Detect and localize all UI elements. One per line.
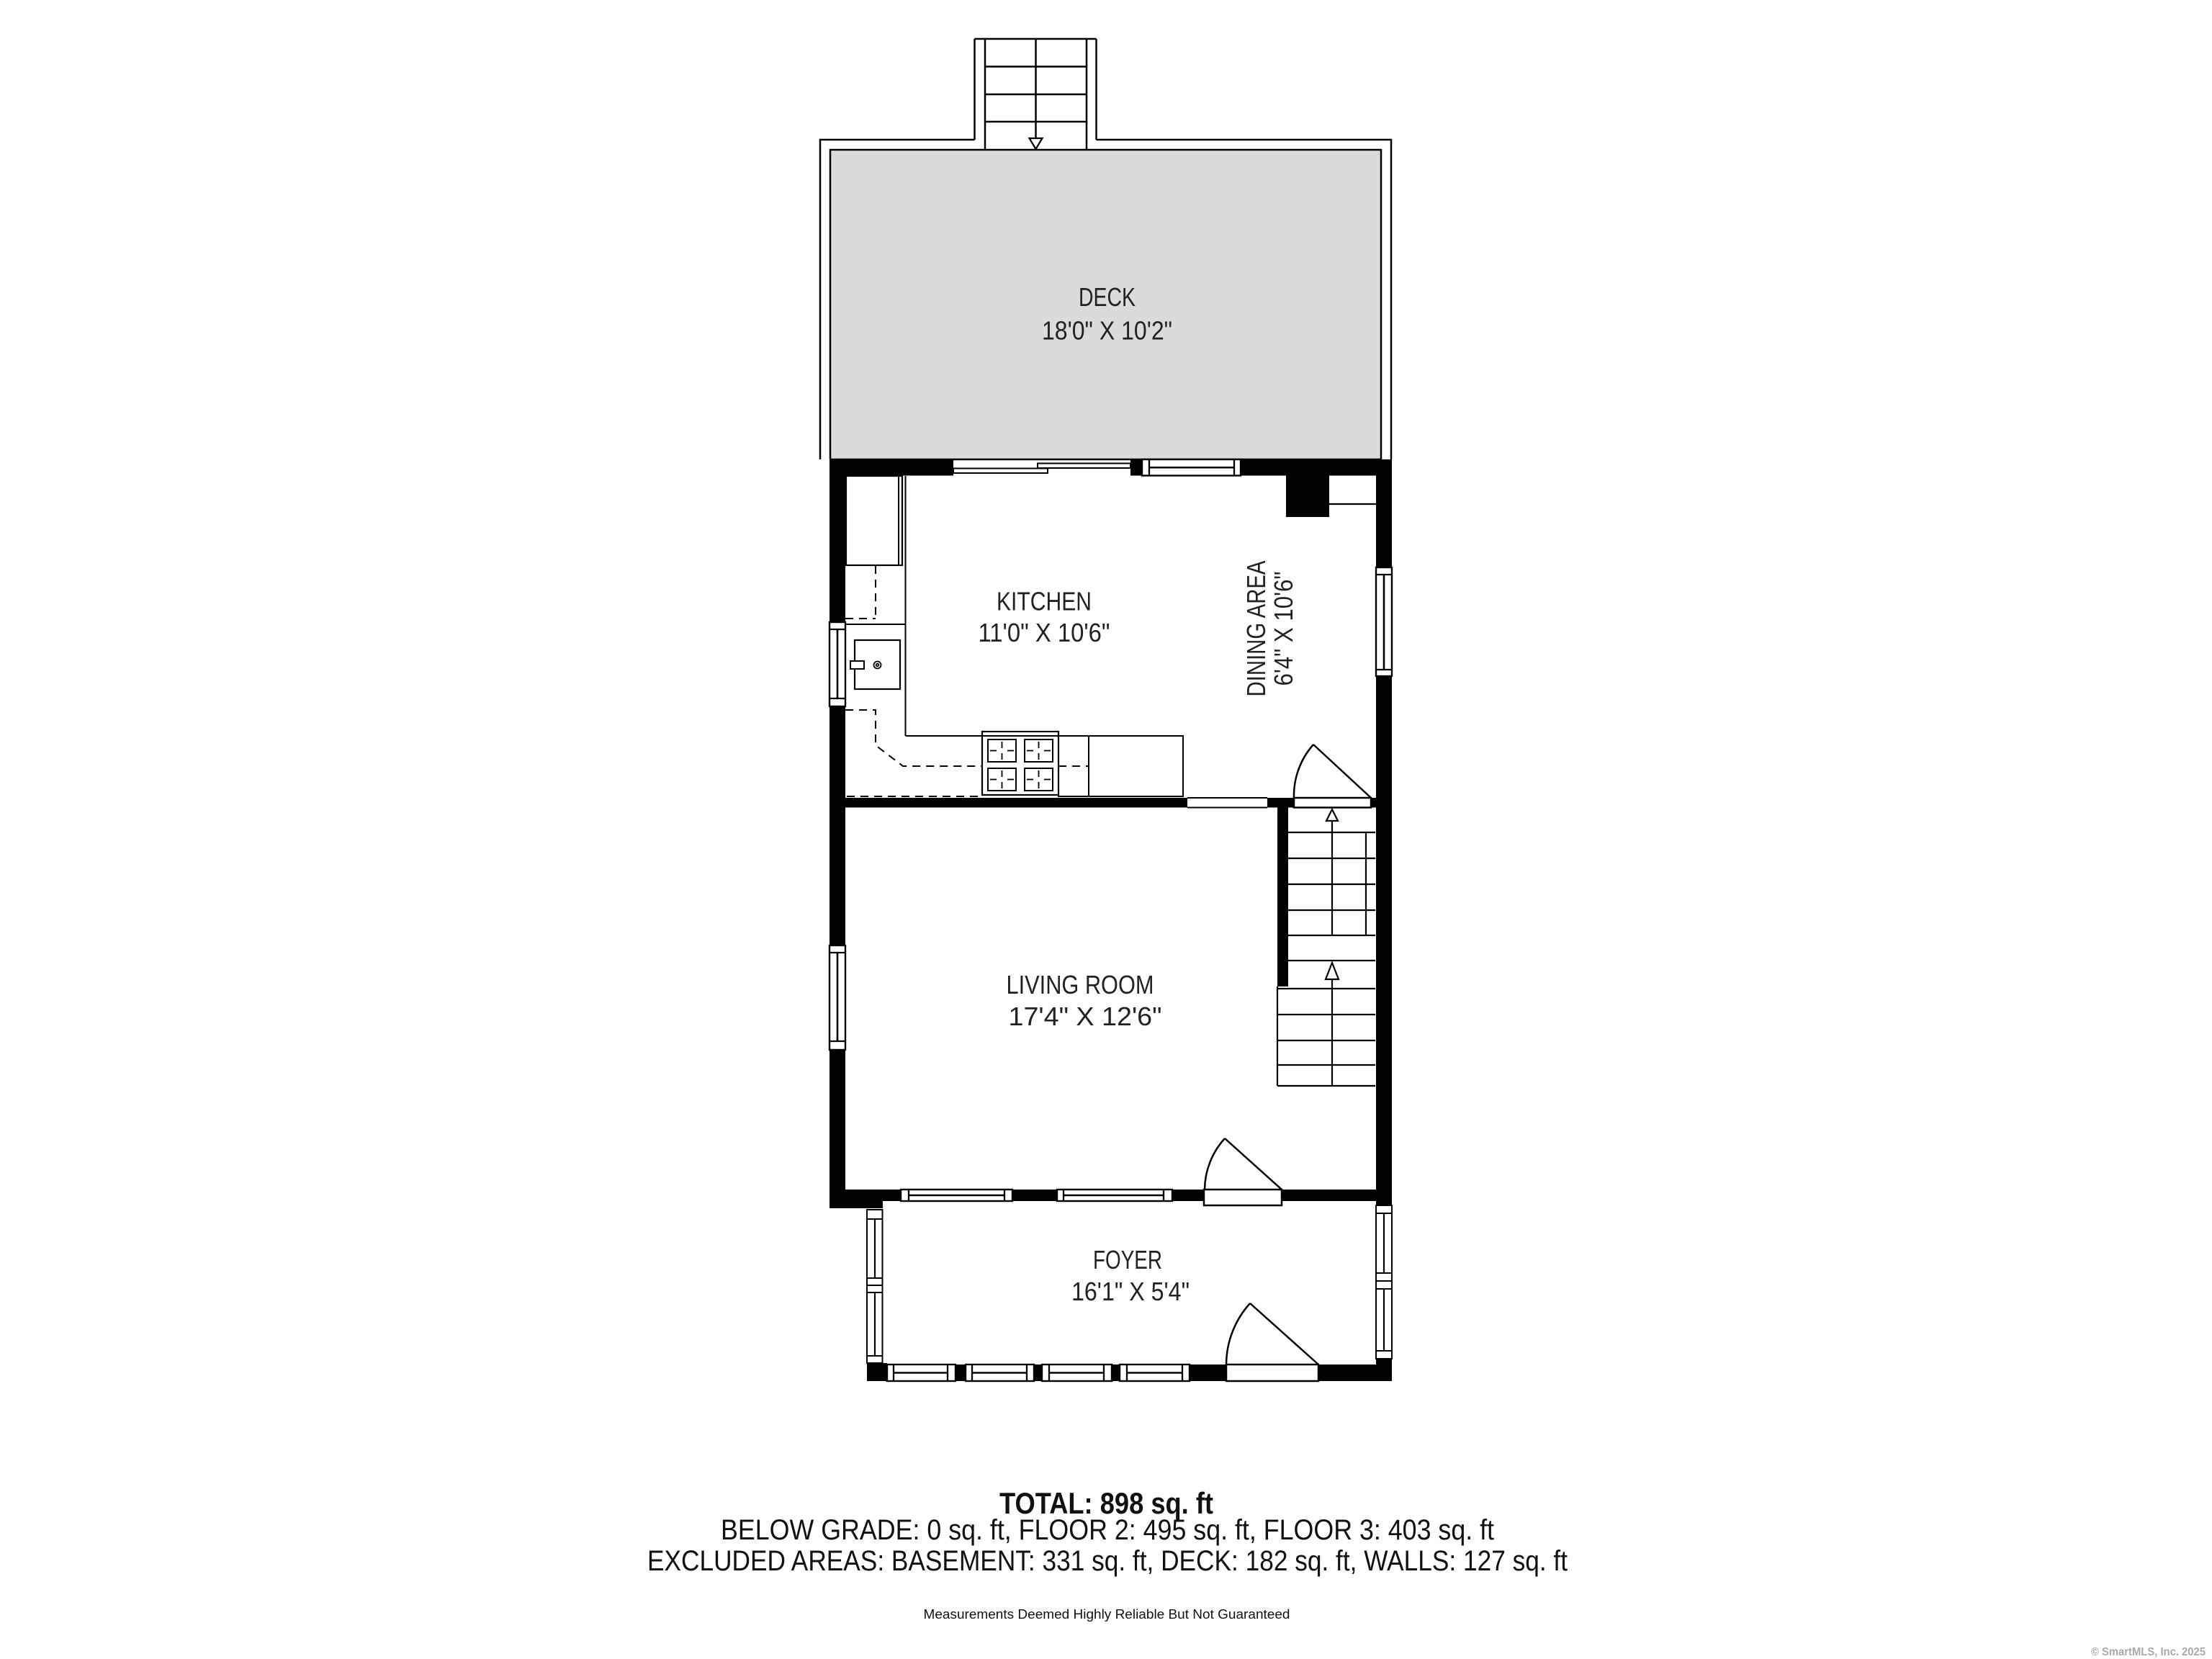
svg-text:KITCHEN: KITCHEN	[997, 587, 1092, 616]
svg-text:18'0" X 10'2": 18'0" X 10'2"	[1042, 316, 1172, 346]
svg-text:DINING AREA: DINING AREA	[1241, 560, 1271, 697]
svg-text:16'1" X 5'4": 16'1" X 5'4"	[1071, 1277, 1190, 1306]
svg-text:© SmartMLS, Inc. 2025: © SmartMLS, Inc. 2025	[2091, 1646, 2206, 1658]
svg-text:DECK: DECK	[1079, 282, 1136, 312]
svg-text:EXCLUDED AREAS: BASEMENT: 331: EXCLUDED AREAS: BASEMENT: 331 sq. ft, DE…	[647, 1545, 1568, 1577]
svg-text:LIVING ROOM: LIVING ROOM	[1007, 970, 1154, 999]
svg-text:BELOW GRADE: 0 sq. ft, FLOOR 2: BELOW GRADE: 0 sq. ft, FLOOR 2: 495 sq. …	[721, 1514, 1494, 1546]
svg-text:11'0" X 10'6": 11'0" X 10'6"	[979, 618, 1110, 647]
svg-text:6'4" X 10'6": 6'4" X 10'6"	[1269, 572, 1298, 686]
svg-text:Measurements Deemed Highly Rel: Measurements Deemed Highly Reliable But …	[924, 1606, 1290, 1622]
svg-text:FOYER: FOYER	[1093, 1245, 1162, 1274]
svg-text:17'4" X 12'6": 17'4" X 12'6"	[1009, 1002, 1162, 1031]
